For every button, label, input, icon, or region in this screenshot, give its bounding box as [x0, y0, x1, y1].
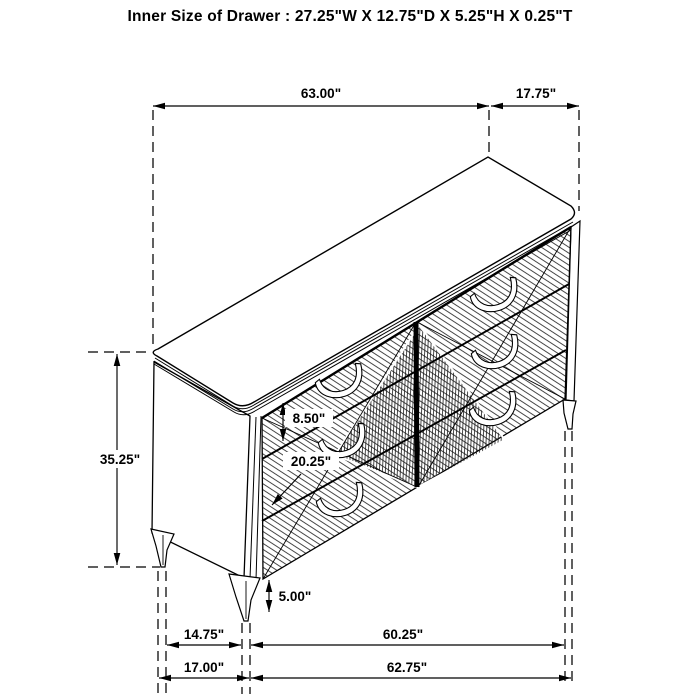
- front-left-leg: [229, 574, 260, 621]
- dimension-label-top-depth: 17.75": [516, 86, 556, 101]
- dimension-label-top-width: 63.00": [301, 86, 341, 101]
- dimension-top-width: 63.00": [153, 86, 489, 106]
- dimension-leg-span-front: 60.25": [251, 627, 564, 645]
- dimension-floor-depth: 17.00": [159, 660, 249, 678]
- dimension-label-lower-drawer-section: 20.25": [291, 454, 331, 469]
- dresser-drawing: 63.00" 17.75" 35.25" 8.50" 20.25" 5.00": [0, 0, 700, 700]
- dimension-overall-height: 35.25": [93, 354, 147, 565]
- dimension-top-depth: 17.75": [491, 86, 579, 106]
- dimension-leg-height: 5.00": [269, 580, 317, 612]
- dimension-diagram: Inner Size of Drawer : 27.25"W X 12.75"D…: [0, 0, 700, 700]
- back-left-leg: [151, 529, 174, 567]
- dimension-leg-span-side: 14.75": [167, 627, 241, 645]
- dimension-label-leg-span-front: 60.25": [383, 627, 423, 642]
- dimension-floor-width: 62.75": [251, 660, 571, 678]
- dresser-front-drawers: [262, 227, 571, 579]
- dimension-label-leg-span-side: 14.75": [184, 627, 224, 642]
- dimension-label-floor-depth: 17.00": [184, 660, 224, 675]
- right-leg: [563, 400, 576, 429]
- dimension-label-floor-width: 62.75": [387, 660, 427, 675]
- dimension-label-leg-height: 5.00": [279, 589, 312, 604]
- center-divider: [416, 322, 417, 487]
- dimension-label-overall-height: 35.25": [100, 452, 140, 467]
- dimension-label-top-drawer-height: 8.50": [293, 411, 326, 426]
